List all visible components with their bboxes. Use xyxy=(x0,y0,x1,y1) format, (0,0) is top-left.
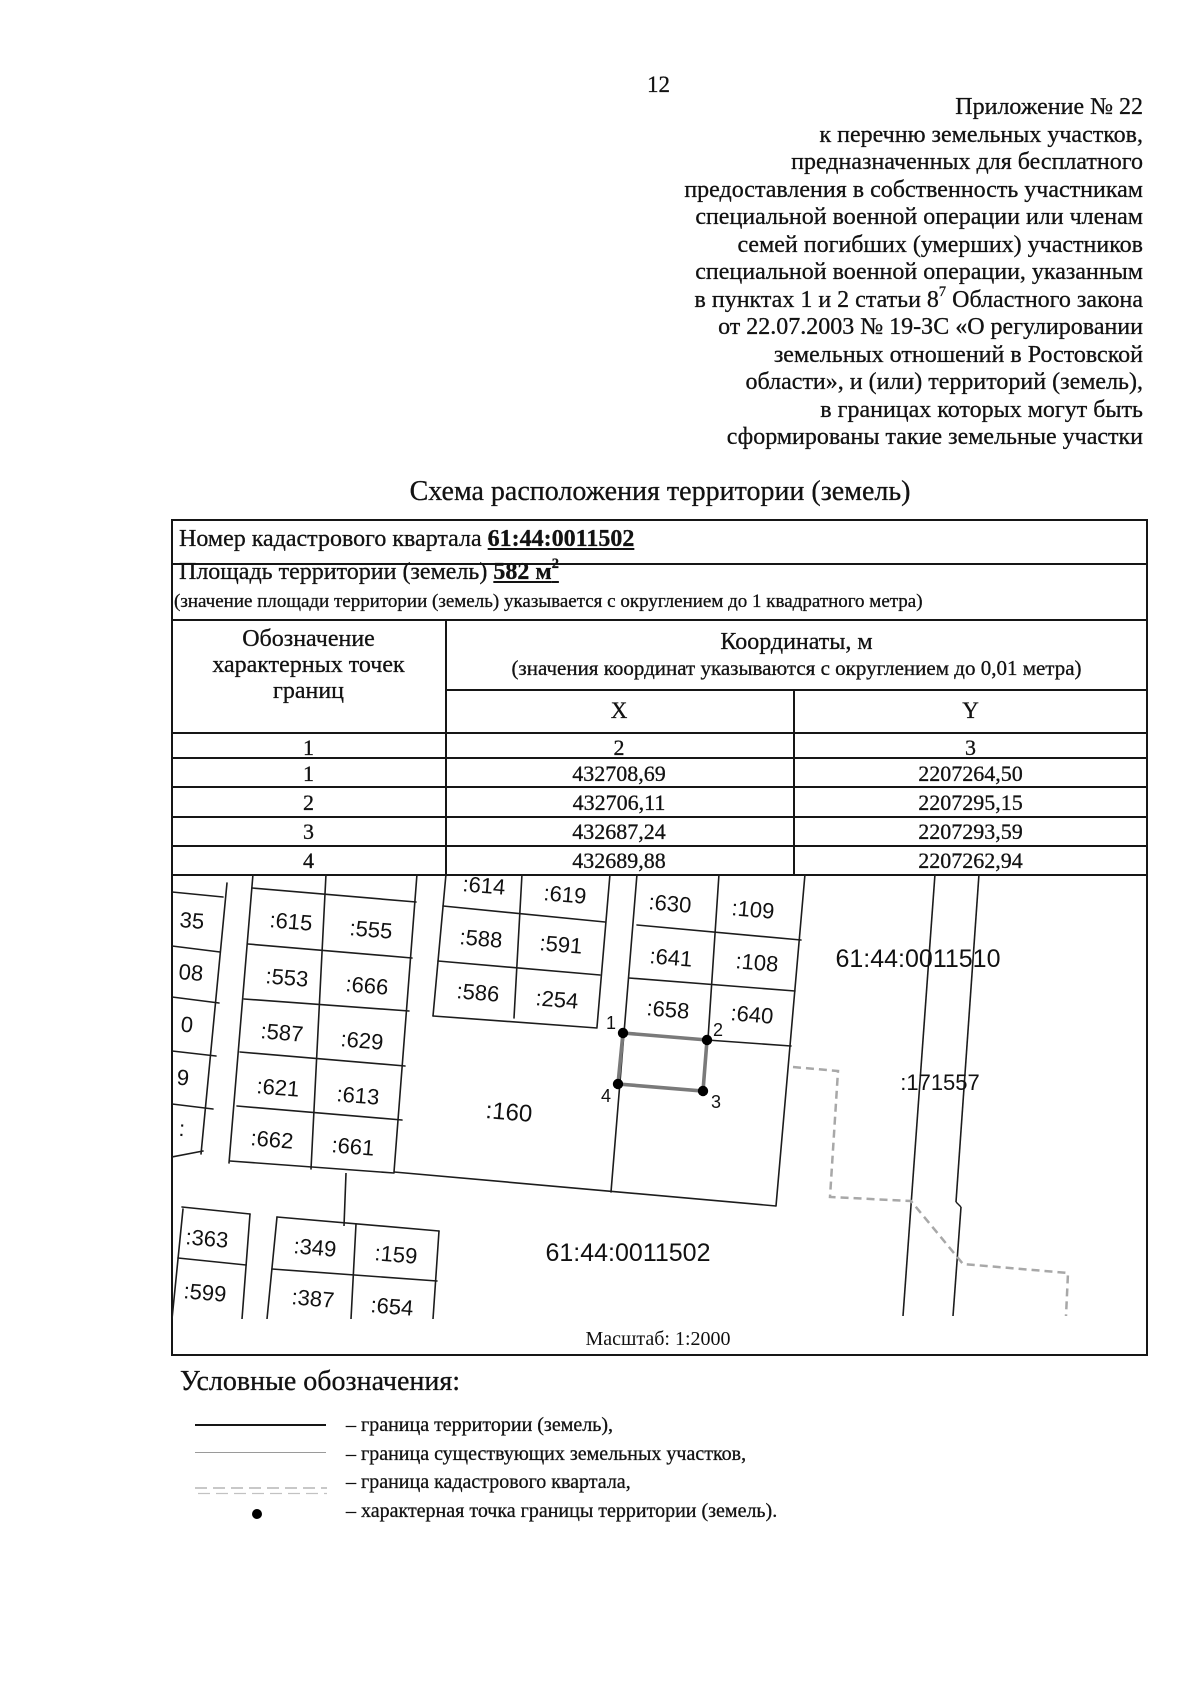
svg-text:1: 1 xyxy=(606,1013,616,1033)
svg-text::630: :630 xyxy=(648,889,693,917)
svg-text::349: :349 xyxy=(293,1233,338,1261)
svg-text::654: :654 xyxy=(370,1292,415,1320)
svg-text::363: :363 xyxy=(185,1224,230,1252)
svg-text::658: :658 xyxy=(646,995,691,1023)
svg-text::553: :553 xyxy=(265,963,310,991)
svg-text:3: 3 xyxy=(711,1092,721,1112)
svg-text:08: 08 xyxy=(178,959,204,986)
svg-text::587: :587 xyxy=(260,1018,305,1046)
svg-text::629: :629 xyxy=(340,1026,385,1054)
svg-text::641: :641 xyxy=(649,943,694,971)
svg-text::619: :619 xyxy=(543,880,588,908)
svg-text:61:44:0011510: 61:44:0011510 xyxy=(836,945,1001,973)
svg-text::591: :591 xyxy=(539,930,584,958)
svg-text::613: :613 xyxy=(336,1081,381,1109)
svg-text:2: 2 xyxy=(713,1020,723,1040)
svg-text::614: :614 xyxy=(462,874,507,900)
svg-text::555: :555 xyxy=(349,915,394,943)
svg-text::159: :159 xyxy=(374,1240,419,1268)
svg-text::254: :254 xyxy=(535,985,580,1013)
svg-text::387: :387 xyxy=(291,1284,336,1312)
svg-text::109: :109 xyxy=(731,895,776,923)
svg-text::108: :108 xyxy=(735,948,780,976)
svg-text::586: :586 xyxy=(456,978,501,1006)
svg-text::160: :160 xyxy=(485,1097,534,1128)
svg-text:Масштаб: 1:2000: Масштаб: 1:2000 xyxy=(585,1328,730,1350)
svg-text::615: :615 xyxy=(269,907,314,935)
svg-text::599: :599 xyxy=(183,1278,228,1306)
svg-text::661: :661 xyxy=(331,1132,376,1160)
svg-text:35: 35 xyxy=(179,907,205,934)
svg-text::640: :640 xyxy=(730,1000,775,1028)
svg-text::171557: :171557 xyxy=(900,1070,980,1095)
svg-text:0: 0 xyxy=(180,1012,194,1038)
svg-text::666: :666 xyxy=(345,971,390,999)
svg-text:9: 9 xyxy=(176,1065,190,1091)
svg-text:61:44:0011502: 61:44:0011502 xyxy=(546,1239,711,1267)
svg-text:4: 4 xyxy=(601,1086,611,1106)
svg-text::621: :621 xyxy=(256,1073,301,1101)
svg-text::: : xyxy=(178,1116,186,1141)
svg-text::662: :662 xyxy=(250,1125,295,1153)
svg-text::588: :588 xyxy=(459,924,504,952)
